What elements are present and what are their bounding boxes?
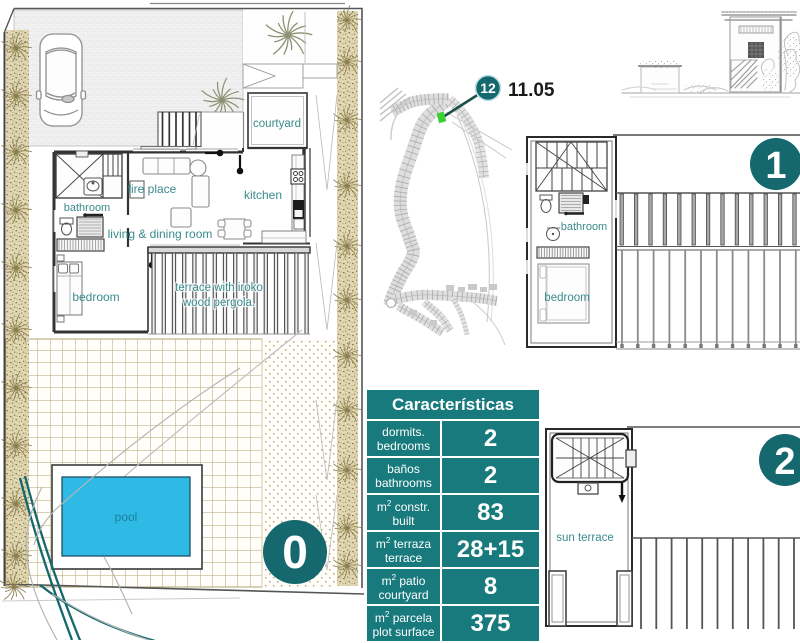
svg-text:wood pergola.: wood pergola. [182,297,255,309]
svg-text:bedroom: bedroom [544,292,589,304]
svg-text:11.05: 11.05 [508,80,555,101]
svg-text:courtyard: courtyard [253,118,301,130]
svg-text:12: 12 [480,80,496,96]
svg-text:pool: pool [115,510,138,524]
svg-text:bathroom: bathroom [64,202,110,214]
svg-text:fire place: fire place [128,182,177,196]
svg-text:bathroom: bathroom [561,221,607,233]
svg-text:bedroom: bedroom [72,290,119,304]
svg-text:terrace with iroko: terrace with iroko [175,282,263,294]
svg-text:kitchen: kitchen [244,188,282,202]
svg-text:2: 2 [774,441,795,483]
svg-text:0: 0 [282,526,308,578]
svg-text:sun terrace: sun terrace [556,532,614,544]
svg-text:living & dining room: living & dining room [108,227,213,241]
svg-text:1: 1 [765,145,786,187]
